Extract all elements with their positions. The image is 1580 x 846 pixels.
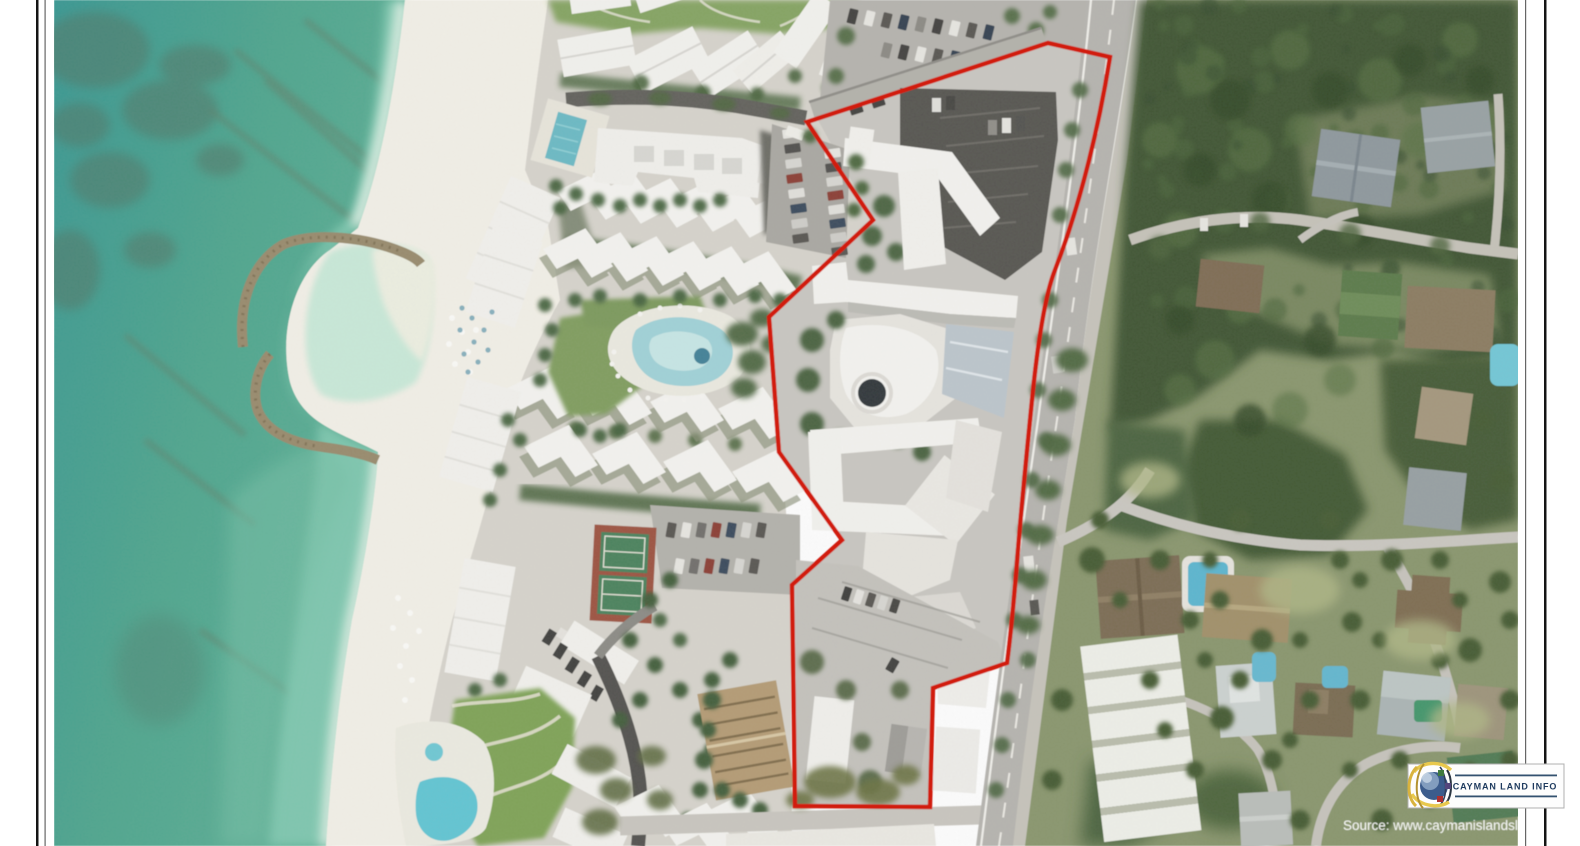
svg-text:CAYMAN LAND INFO: CAYMAN LAND INFO — [1453, 782, 1558, 792]
